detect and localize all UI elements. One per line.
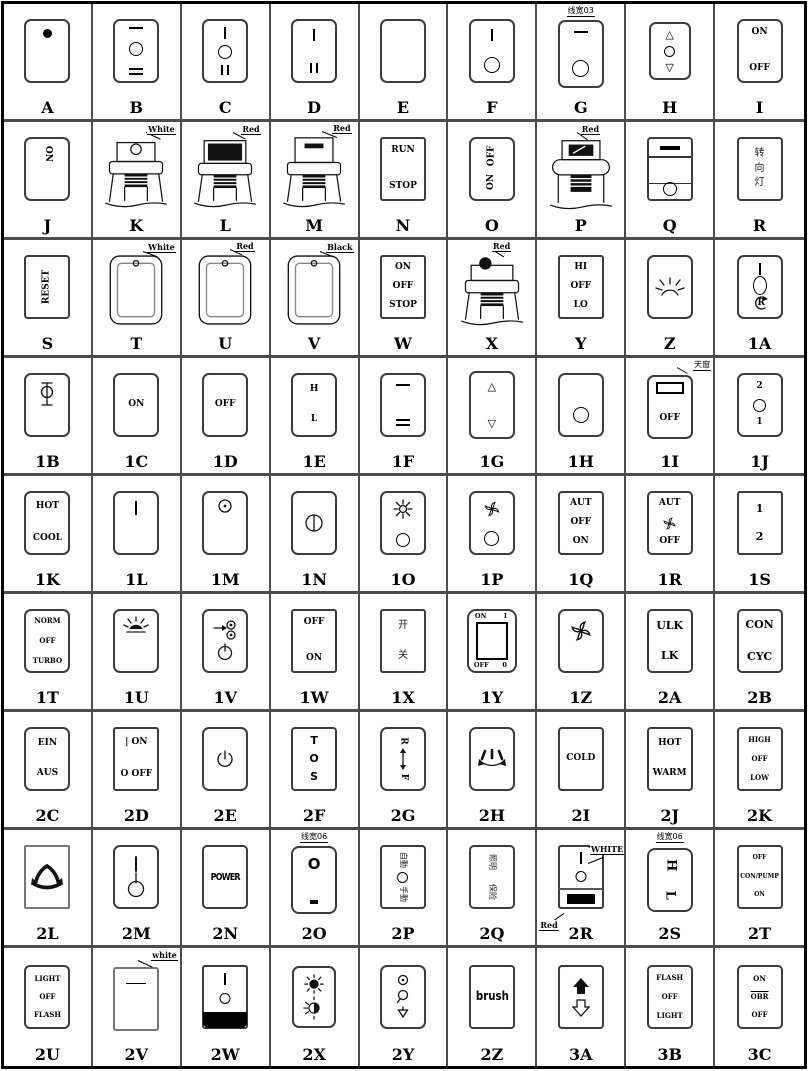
cell-1V: 1V — [182, 594, 271, 712]
cell-label: 2I — [537, 806, 624, 827]
on-label: ON — [395, 263, 411, 273]
circle-icon — [129, 42, 143, 56]
circle-icon — [218, 45, 232, 59]
color-annotation: White — [147, 242, 176, 253]
cell-label: 2U — [4, 1045, 91, 1066]
linewidth-annotation: 线宽03 — [567, 5, 595, 17]
switch-face — [291, 19, 337, 83]
off-label: OFF — [570, 518, 591, 528]
ulk-label: ULK — [656, 620, 683, 632]
triangle-down-icon: ▽ — [665, 62, 673, 73]
aut-label: AUT — [659, 499, 681, 509]
cell-1P: 1P — [448, 476, 537, 594]
switch-face: EINAUS — [24, 727, 70, 791]
cell-label: 1O — [360, 570, 447, 591]
switch-face — [113, 491, 159, 555]
cell-label: 1W — [271, 688, 358, 709]
cell-2Y: 2Y — [360, 948, 449, 1066]
cell-label: 2T — [715, 924, 804, 945]
cell-label: V — [271, 334, 358, 355]
circle-icon — [484, 57, 500, 73]
switch-face: O — [291, 846, 337, 914]
h-label: H — [310, 385, 319, 395]
off-label: OFF — [752, 755, 768, 763]
on-label: ON — [754, 892, 765, 899]
dash-icon — [574, 31, 588, 33]
cell-T: WhiteT — [93, 240, 182, 358]
close-char: 关 — [398, 650, 408, 663]
cell-label: 1E — [271, 452, 358, 473]
switch-face: OFFCON/PUMPON — [737, 845, 783, 909]
double-bar-icon — [310, 63, 318, 73]
cjk-label-top: 照明 — [487, 854, 497, 870]
norm-label: NORM — [34, 617, 60, 625]
divider-line — [559, 888, 603, 890]
oval-icon — [753, 276, 767, 295]
cell-1E: HL1E — [271, 358, 360, 476]
cell-label: 2O — [271, 924, 358, 945]
cell-label: P — [537, 216, 624, 237]
cell-1Z: 1Z — [537, 594, 626, 712]
cell-2L: 2L — [4, 830, 93, 948]
switch-face: 12 — [737, 491, 783, 555]
cell-1O: 1O — [360, 476, 449, 594]
on-label: ON — [753, 975, 766, 983]
wash-drip-icon — [393, 974, 413, 1020]
pos2-label: 2 — [756, 531, 764, 543]
air-sweep-icon — [476, 747, 508, 771]
cell-label: 2F — [271, 806, 358, 827]
switch-face — [202, 727, 248, 791]
cell-2E: 2E — [182, 712, 271, 830]
on-label: ON — [306, 654, 322, 664]
off-label: O OFF — [121, 770, 153, 780]
bar-circle-icon — [124, 855, 148, 899]
switch-face — [202, 965, 248, 1029]
on-label: ON — [573, 537, 589, 547]
switch-face — [202, 19, 248, 83]
cell-Y: HIOFFLOY — [537, 240, 626, 358]
cell-1M: 1M — [182, 476, 271, 594]
high-label: HIGH — [748, 736, 770, 744]
window-rect-icon — [656, 382, 684, 394]
power-label: POWER — [211, 872, 240, 883]
circle-icon — [573, 407, 589, 423]
off-label: OFF — [570, 282, 591, 292]
light-label: LIGHT — [34, 975, 60, 983]
cell-label: Q — [626, 216, 713, 237]
cell-U: RedU — [182, 240, 271, 358]
switch-face: ULKLK — [647, 609, 693, 673]
cell-label: 2J — [626, 806, 713, 827]
bar-icon — [491, 29, 493, 41]
zero-label: 0 — [502, 662, 507, 669]
cell-label: 1D — [182, 452, 269, 473]
off-label: OFF — [39, 993, 55, 1001]
bar-icon — [224, 27, 226, 39]
cell-F: F — [448, 4, 537, 122]
cell-label: E — [360, 98, 447, 119]
switch-face — [558, 609, 604, 673]
cell-label: 1P — [448, 570, 535, 591]
switch-face: TOS — [291, 727, 337, 791]
bezel-switch-icon — [286, 253, 342, 327]
fan-icon — [662, 516, 677, 531]
sunroof-annotation: 天窗 — [693, 359, 711, 371]
switch-face: △▽ — [469, 371, 515, 439]
r-label: R — [398, 737, 408, 744]
up-down-arrows-icon — [572, 977, 590, 1017]
dot-icon — [43, 29, 52, 38]
auto-label: 自動 — [398, 852, 408, 868]
on-label: ON — [487, 174, 497, 190]
f-label: F — [398, 774, 408, 780]
circle-icon — [664, 46, 675, 57]
cell-1L: 1L — [93, 476, 182, 594]
cell-label: 2A — [626, 688, 713, 709]
cell-X: RedX — [448, 240, 537, 358]
cell-label: 2K — [715, 806, 804, 827]
lk-label: LK — [661, 650, 678, 662]
switch-face: 转向灯 — [737, 137, 783, 201]
run-label: RUN — [391, 146, 415, 156]
switch-face: HOTCOOL — [24, 491, 70, 555]
divider-line — [649, 156, 691, 158]
switch-face — [24, 845, 70, 909]
cell-label: K — [93, 216, 180, 237]
switch-face — [469, 727, 515, 791]
r-arrow-icon: R — [750, 296, 770, 311]
cell-label: 1V — [182, 688, 269, 709]
reset-label: RESET — [42, 270, 52, 304]
cell-label: B — [93, 98, 180, 119]
circle-icon — [753, 399, 766, 412]
switch-face: ONOFF — [737, 19, 783, 83]
i-label: I — [504, 613, 507, 620]
switch-face — [380, 965, 426, 1029]
bar-icon — [759, 263, 761, 275]
switch-face: ONOFFSTOP — [380, 255, 426, 319]
side-view-switch-icon — [100, 131, 172, 211]
circle-icon — [484, 531, 499, 546]
bar-icon — [135, 501, 137, 515]
low-label: LOW — [750, 774, 769, 782]
switch-face: 开关 — [380, 609, 426, 673]
pos1-label: 1 — [756, 503, 764, 515]
cell-label: G — [537, 98, 624, 119]
switch-face — [291, 491, 337, 555]
white-annotation: WHITE — [590, 844, 624, 855]
cell-2J: HOTWARM2J — [626, 712, 715, 830]
off-label: OFF — [304, 618, 325, 628]
color-annotation: Black — [326, 242, 353, 253]
switch-face: AUTOFFON — [558, 491, 604, 555]
fuse-symbol-icon — [37, 380, 57, 410]
h-mark: H — [663, 859, 677, 871]
circle-icon — [397, 872, 408, 883]
hi-label: HI — [574, 263, 587, 273]
off-label: OFF — [749, 64, 770, 74]
aut-label: AUT — [570, 499, 592, 509]
switch-face: FLASHOFFLIGHT — [647, 965, 693, 1029]
aus-label: AUS — [37, 769, 58, 779]
cell-E: E — [360, 4, 449, 122]
cell-K: WhiteK — [93, 122, 182, 240]
equals-icon — [129, 68, 143, 75]
cell-label: 1K — [4, 570, 91, 591]
o-label: O — [309, 753, 318, 765]
headlight-beams-icon — [300, 974, 328, 1020]
cell-O: OFFONO — [448, 122, 537, 240]
on-label: ON — [128, 400, 144, 410]
circle-icon — [396, 533, 410, 547]
linewidth-annotation: 线宽06 — [656, 831, 684, 843]
cell-label: T — [93, 334, 180, 355]
cell-label: F — [448, 98, 535, 119]
switch-face: 自動手動 — [380, 845, 426, 909]
light-label: LIGHT — [657, 1012, 683, 1020]
cell-N: RUNSTOPN — [360, 122, 449, 240]
lo-label: LO — [574, 301, 588, 311]
switch-face: | ONO OFF — [113, 727, 159, 791]
switch-face: HIGHOFFLOW — [737, 727, 783, 791]
off-label: OFF — [753, 855, 767, 862]
linewidth-annotation: 线宽06 — [300, 831, 328, 843]
on-label: | ON — [125, 738, 147, 748]
cell-I: ONOFFI — [715, 4, 804, 122]
switch-face: OFFON — [291, 609, 337, 673]
cell-label: 2M — [93, 924, 180, 945]
warm-label: WARM — [653, 769, 687, 779]
cell-label: 2Q — [448, 924, 535, 945]
bar-icon — [313, 29, 315, 41]
cell-label: 2B — [715, 688, 804, 709]
cell-label: 1L — [93, 570, 180, 591]
cell-label: 1F — [360, 452, 447, 473]
switch-face: COLD — [558, 727, 604, 791]
switch-symbol-sheet: A B C D E F 线宽03G △▽H ONOFFI ONJ WhiteK … — [1, 1, 807, 1069]
cell-label: 3B — [626, 1045, 713, 1066]
cell-label: 1M — [182, 570, 269, 591]
switch-face — [202, 491, 248, 555]
cell-2A: ULKLK2A — [626, 594, 715, 712]
cell-label: S — [4, 334, 91, 355]
switch-face — [24, 19, 70, 83]
equals-icon — [396, 419, 410, 426]
cell-label: 1T — [4, 688, 91, 709]
color-annotation: Red — [235, 241, 254, 252]
color-annotation: White — [147, 124, 176, 135]
cell-label: 2X — [271, 1045, 358, 1066]
switch-face — [469, 491, 515, 555]
circle-icon — [220, 993, 231, 1004]
cell-H: △▽H — [626, 4, 715, 122]
double-arrow-icon — [399, 748, 407, 770]
cell-label: 1X — [360, 688, 447, 709]
bezel-switch-icon — [197, 253, 253, 327]
cell-label: 1Y — [448, 688, 535, 709]
triangle-down-icon: ▽ — [488, 418, 496, 429]
cell-2Z: brush2Z — [448, 948, 537, 1066]
switch-face: NORMOFFTURBO — [24, 609, 70, 673]
cell-label: 1B — [4, 452, 91, 473]
switch-face: POWER — [202, 845, 248, 909]
cell-C: C — [182, 4, 271, 122]
color-annotation: Red — [332, 123, 351, 134]
side-view-switch-icon — [456, 249, 528, 329]
stop-label: STOP — [389, 301, 417, 311]
cell-label: 1H — [537, 452, 624, 473]
switch-face — [380, 19, 426, 83]
switch-face — [113, 19, 159, 83]
cell-label: O — [448, 216, 535, 237]
o-mark: O — [308, 856, 321, 873]
switch-face — [24, 373, 70, 437]
switch-face: ON — [113, 373, 159, 437]
cell-2W: 2W — [182, 948, 271, 1066]
circle-icon — [572, 60, 589, 77]
off-label: OFF — [659, 414, 680, 424]
l-mark: L — [663, 890, 677, 899]
cool-label: COOL — [33, 534, 62, 544]
cell-label: N — [360, 216, 447, 237]
cell-label: U — [182, 334, 269, 355]
color-annotation: Red — [581, 124, 600, 135]
cell-1W: OFFON1W — [271, 594, 360, 712]
switch-face — [113, 845, 159, 909]
cell-2C: EINAUS2C — [4, 712, 93, 830]
target-power-icon — [212, 619, 238, 663]
cell-V: BlackV — [271, 240, 360, 358]
switch-face — [202, 609, 248, 673]
side-view-switch-icon — [545, 132, 617, 212]
cjk-char: 灯 — [755, 177, 765, 190]
cell-label: 2W — [182, 1045, 269, 1066]
cell-1C: ON1C — [93, 358, 182, 476]
cell-1X: 开关1X — [360, 594, 449, 712]
switch-face: OFF — [202, 373, 248, 437]
dash-icon — [126, 983, 146, 985]
switch-face — [380, 491, 426, 555]
cell-1G: △▽1G — [448, 358, 537, 476]
cell-G: 线宽03G — [537, 4, 626, 122]
cell-M: RedM — [271, 122, 360, 240]
cell-2K: HIGHOFFLOW2K — [715, 712, 804, 830]
cell-label: Z — [626, 334, 713, 355]
switch-face — [647, 255, 693, 319]
split-circle-icon — [304, 513, 324, 533]
cell-2X: 2X — [271, 948, 360, 1066]
cell-1Y: ONIOFF01Y — [448, 594, 537, 712]
cell-1N: 1N — [271, 476, 360, 594]
cell-label: 3A — [537, 1045, 624, 1066]
switch-face: HL — [647, 848, 693, 912]
color-annotation: Red — [241, 124, 260, 135]
s-label: S — [310, 771, 318, 783]
cell-1H: 1H — [537, 358, 626, 476]
switch-face: LIGHTOFFFLASH — [24, 965, 70, 1029]
cell-2M: 2M — [93, 830, 182, 948]
cell-2T: OFFCON/PUMPON2T — [715, 830, 804, 948]
t-label: T — [310, 735, 318, 747]
thick-dash-icon — [660, 146, 680, 150]
dash-mark — [310, 900, 318, 904]
cell-2H: 2H — [448, 712, 537, 830]
circle-icon — [575, 871, 586, 882]
cell-1Q: AUTOFFON1Q — [537, 476, 626, 594]
manual-label: 手動 — [398, 886, 408, 902]
turbo-label: TURBO — [33, 657, 62, 665]
switch-face: HIOFFLO — [558, 255, 604, 319]
bar-icon — [224, 973, 226, 985]
switch-face: 21 — [737, 373, 783, 437]
cell-L: RedL — [182, 122, 271, 240]
cell-P: RedP — [537, 122, 626, 240]
cell-2G: RF2G — [360, 712, 449, 830]
circled-dot-icon — [217, 498, 233, 514]
cell-W: ONOFFSTOPW — [360, 240, 449, 358]
cell-3C: ONOBROFF3C — [715, 948, 804, 1066]
cell-label: 1A — [715, 334, 804, 355]
cell-2P: 自動手動2P — [360, 830, 449, 948]
switch-face: AUTOFF — [647, 491, 693, 555]
switch-face: 照明保险 — [469, 845, 515, 909]
cell-label: J — [4, 216, 91, 237]
cell-label: 3C — [715, 1045, 804, 1066]
cell-Q: Q — [626, 122, 715, 240]
inner-frame — [476, 622, 508, 660]
triangle-up-icon: △ — [488, 381, 496, 392]
cell-J: ONJ — [4, 122, 93, 240]
cell-D: D — [271, 4, 360, 122]
switch-face: RUNSTOP — [380, 137, 426, 201]
pos1-label: 1 — [756, 418, 762, 428]
switch-face — [647, 137, 693, 201]
cell-1R: AUTOFF1R — [626, 476, 715, 594]
stop-label: STOP — [389, 182, 417, 192]
cell-2S: 线宽06HL2S — [626, 830, 715, 948]
cell-3A: 3A — [537, 948, 626, 1066]
cell-2O: 线宽06O2O — [271, 830, 360, 948]
cell-3B: FLASHOFFLIGHT3B — [626, 948, 715, 1066]
off-label: OFF — [752, 1011, 768, 1019]
switch-face: RESET — [24, 255, 70, 319]
cell-1U: 1U — [93, 594, 182, 712]
mirror-fold-icon — [30, 862, 64, 892]
cell-2B: CONCYC2B — [715, 594, 804, 712]
con-pump-label: CON/PUMP — [740, 874, 779, 881]
pos2-label: 2 — [756, 382, 762, 392]
switch-face — [292, 966, 336, 1028]
switch-face — [113, 609, 159, 673]
cell-2R: WHITERed2R — [537, 830, 626, 948]
switch-face: OFF — [647, 375, 693, 439]
cjk-char: 转 — [755, 148, 765, 161]
switch-face — [113, 967, 159, 1031]
side-view-switch-icon — [189, 131, 261, 211]
cell-2U: LIGHTOFFFLASH2U — [4, 948, 93, 1066]
heated-light-icon — [122, 616, 150, 634]
l-label: L — [311, 415, 317, 425]
ein-label: EIN — [38, 739, 57, 749]
cell-label: 2C — [4, 806, 91, 827]
cell-Z: Z — [626, 240, 715, 358]
cyc-label: CYC — [747, 651, 772, 663]
cell-1I: 天窗OFF1I — [626, 358, 715, 476]
cell-1S: 121S — [715, 476, 804, 594]
cell-label: 2Y — [360, 1045, 447, 1066]
cell-label: 2H — [448, 806, 535, 827]
